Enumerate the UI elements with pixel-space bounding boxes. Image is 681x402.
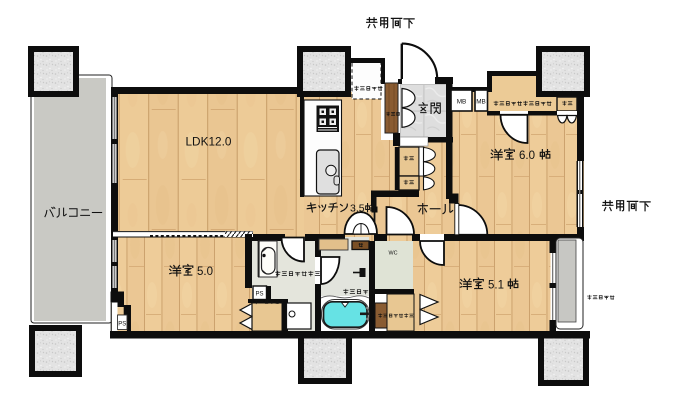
svg-text:5.1: 5.1 — [488, 280, 504, 292]
svg-text:WC: WC — [389, 251, 398, 257]
svg-text:PS: PS — [118, 322, 126, 328]
svg-text:MB: MB — [457, 99, 467, 106]
svg-text:3.5: 3.5 — [350, 203, 365, 215]
svg-text:MB: MB — [476, 99, 486, 106]
svg-text:6.0: 6.0 — [519, 150, 535, 162]
svg-text:PS: PS — [255, 292, 263, 298]
svg-text:LDK12.0: LDK12.0 — [186, 135, 232, 149]
svg-text:5.0: 5.0 — [197, 266, 213, 278]
